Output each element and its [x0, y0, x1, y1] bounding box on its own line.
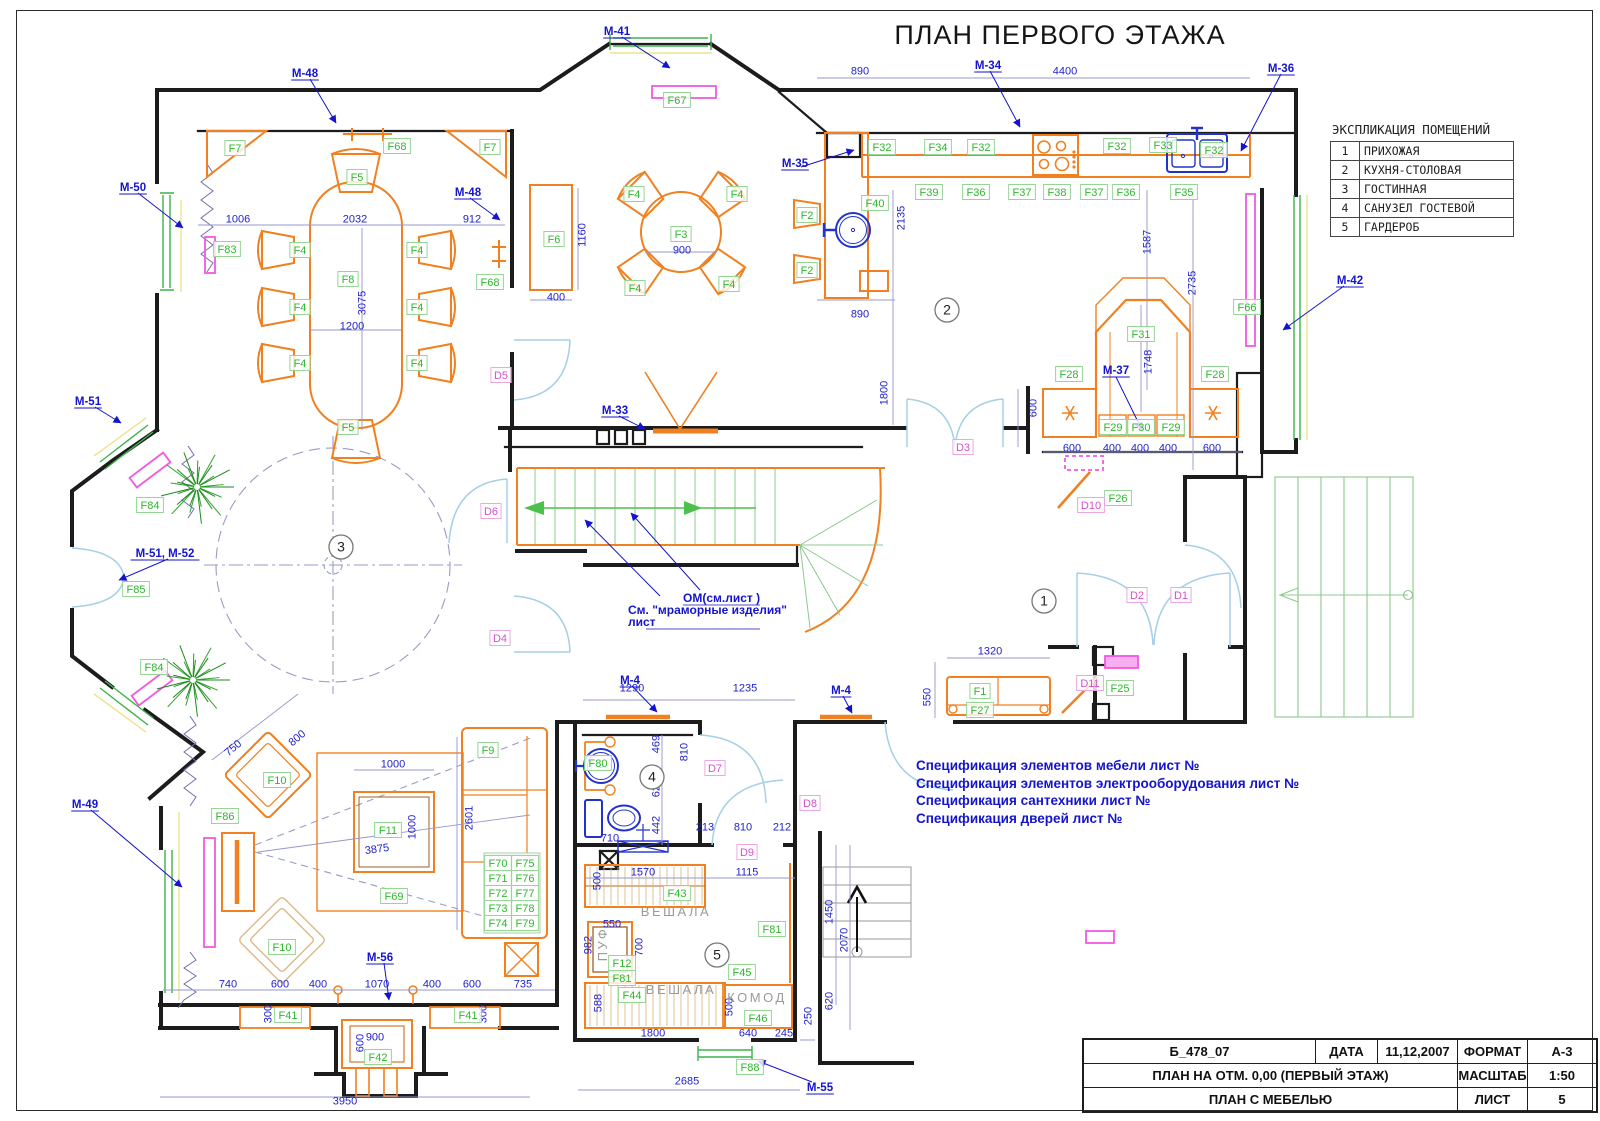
furniture-label: F2: [801, 265, 814, 277]
radiator-f86: [204, 838, 215, 947]
dimension-text: 400: [1159, 443, 1177, 455]
legend-row: 2КУХНЯ-СТОЛОВАЯ: [1331, 161, 1514, 180]
furniture-label: F86: [216, 811, 235, 823]
format-value: А-3: [1528, 1040, 1596, 1063]
mount-label: М-42: [1337, 275, 1363, 287]
furniture-label: F33: [1154, 140, 1173, 152]
spec-note-line: Спецификация дверей лист №: [916, 810, 1299, 828]
furniture-label: F32: [1108, 141, 1127, 153]
furniture-label: F40: [866, 198, 885, 210]
plant-icon: [157, 645, 230, 716]
furniture-label: F68: [388, 141, 407, 153]
furniture-label: F25: [1111, 683, 1130, 695]
dimension-text: 620: [824, 992, 836, 1010]
legend-row: 4САНУЗЕЛ ГОСТЕВОЙ: [1331, 199, 1514, 218]
fireplace-f31: [1043, 278, 1238, 437]
dimension-text: 400: [547, 292, 565, 304]
dimension-text: 810: [679, 743, 691, 761]
furniture-label: F38: [1048, 187, 1067, 199]
door-label: D4: [493, 633, 507, 645]
furniture-label: F83: [218, 244, 237, 256]
dimension-text: 1160: [577, 223, 589, 247]
legend-row: 1ПРИХОЖАЯ: [1331, 142, 1514, 161]
furniture-label: F79: [516, 918, 535, 930]
legend-cell: 1: [1331, 142, 1360, 161]
furniture-label: F77: [516, 888, 535, 900]
furniture-label: F4: [723, 279, 736, 291]
legend-cell: 2: [1331, 161, 1360, 180]
furniture-label: F6: [548, 234, 561, 246]
dimension-text: 1000: [407, 815, 419, 839]
room-number: 2: [943, 302, 951, 318]
dimension-text: 735: [514, 979, 532, 991]
island-sink-f40-icon: [824, 213, 870, 247]
room-number-bubbles: 12345: [329, 298, 1056, 967]
mount-label: М-50: [120, 182, 146, 194]
furniture-label: F34: [929, 142, 948, 154]
scale-label: МАСШТАБ: [1458, 1064, 1528, 1087]
furniture-label: F30: [1132, 422, 1151, 434]
legend-cell: 3: [1331, 180, 1360, 199]
dimension-text: 900: [366, 1032, 384, 1044]
dimension-text: 1235: [733, 683, 757, 695]
door-label: D2: [1130, 590, 1144, 602]
legend-row: 3ГОСТИННАЯ: [1331, 180, 1514, 199]
radiator-small: [1086, 931, 1114, 943]
mount-label: М-4: [831, 685, 851, 697]
stair-annotation: лист: [628, 615, 656, 629]
legend-cell: САНУЗЕЛ ГОСТЕВОЙ: [1360, 199, 1514, 218]
furniture-label: F4: [294, 358, 307, 370]
room-number: 1: [1040, 593, 1048, 609]
radiator-f66: [1246, 194, 1255, 346]
furniture-label: F29: [1162, 422, 1181, 434]
stair-direction-arrow: [524, 501, 544, 515]
furniture-label: F74: [489, 918, 508, 930]
furniture-label: F41: [459, 1010, 478, 1022]
plants: [157, 452, 234, 716]
dimension-text: 600: [1203, 443, 1221, 455]
dimension-text: 1800: [879, 381, 891, 405]
mount-label: М-34: [975, 60, 1002, 72]
dimension-text: 600: [1028, 399, 1040, 417]
dimension-text: 1587: [1142, 230, 1154, 254]
furniture-label: F43: [668, 888, 687, 900]
furniture-label: F31: [1132, 329, 1151, 341]
title-block: Б_478_07 ДАТА 11,12,2007 ФОРМАТ А-3 ПЛАН…: [1082, 1038, 1598, 1113]
room-number: 5: [713, 947, 721, 963]
dimension-text: 250: [803, 1007, 815, 1025]
radiator-f84: [130, 453, 171, 488]
dimension-text: 550: [922, 688, 934, 706]
room-number: 4: [648, 769, 656, 785]
door-label: D11: [1080, 678, 1099, 690]
furniture-label: F9: [482, 745, 495, 757]
dimension-text: 3950: [333, 1096, 357, 1108]
asterisk-icon: [1062, 406, 1221, 420]
legend-cell: ГОСТИННАЯ: [1360, 180, 1514, 199]
wall-lamp-f68: [492, 240, 506, 268]
dimension-text: 982: [583, 936, 595, 954]
cabinet-f26-dashed: [1065, 456, 1103, 470]
mount-label: М-49: [72, 799, 98, 811]
dimension-text: 4400: [1053, 66, 1077, 78]
door-label: D1: [1174, 590, 1188, 602]
door-label: D6: [484, 506, 498, 518]
door-label: D5: [494, 370, 508, 382]
stair-annotations: ОМ(см.лист )См. "мраморные изделия"лист: [628, 591, 787, 629]
furniture-label: F12: [613, 958, 632, 970]
furniture-label: F32: [873, 142, 892, 154]
date-value: 11,12,2007: [1378, 1040, 1458, 1063]
bench-f1-f27: [947, 677, 1050, 715]
furniture-label: F10: [268, 775, 287, 787]
mount-label: М-37: [1103, 365, 1129, 377]
walls-exterior: [72, 44, 1296, 1096]
mount-label: М-33: [602, 405, 628, 417]
dimension-text: 1006: [226, 214, 250, 226]
furniture-label: F4: [294, 302, 307, 314]
scale-value: 1:50: [1528, 1064, 1596, 1087]
spec-note-line: Спецификация элементов электрооборудован…: [916, 775, 1299, 793]
mount-label: М-51: [75, 396, 102, 408]
spec-note-line: Спецификация элементов мебели лист №: [916, 757, 1299, 775]
furniture-label: F81: [763, 924, 782, 936]
furniture-label: F28: [1206, 369, 1225, 381]
furniture-label: F37: [1013, 187, 1032, 199]
dimension-text: 810: [734, 822, 752, 834]
dimension-text: 3875: [364, 842, 390, 857]
format-label: ФОРМАТ: [1458, 1040, 1528, 1063]
legend-cell: 5: [1331, 218, 1360, 237]
furniture-label: F46: [749, 1013, 768, 1025]
door-label: D9: [740, 847, 754, 859]
room-text: ВЕШАЛА: [641, 904, 711, 919]
mount-label: М-51, М-52: [136, 548, 195, 560]
dimension-text: 600: [1063, 443, 1081, 455]
dimension-text: 400: [1103, 443, 1121, 455]
legend-row: 5ГАРДЕРОБ: [1331, 218, 1514, 237]
furniture-label: F7: [484, 142, 497, 154]
furniture-label: F76: [516, 873, 535, 885]
furniture-label: F10: [273, 942, 292, 954]
door-label: D8: [803, 798, 817, 810]
furniture-label: F5: [342, 422, 355, 434]
furniture-label: F73: [489, 903, 508, 915]
mount-label: М-55: [807, 1082, 834, 1094]
walls-interior: [198, 44, 1296, 869]
toilet-icon: [585, 800, 640, 837]
furniture-label: F7: [229, 143, 242, 155]
furniture-label: F2: [801, 210, 814, 222]
mount-label: М-35: [782, 158, 809, 170]
dimension-text: 588: [593, 994, 605, 1012]
dimension-text: 213: [696, 822, 714, 834]
mount-label: М-4: [620, 675, 640, 687]
dimension-text: 750: [222, 738, 244, 759]
side-table-xbox: [505, 943, 538, 976]
dimension-text: 400: [1131, 443, 1149, 455]
floor-plan-sheet: { "title": "ПЛАН ПЕРВОГО ЭТАЖА", "legend…: [0, 0, 1600, 1121]
mount-label: М-56: [367, 952, 393, 964]
dimension-text: 400: [309, 979, 327, 991]
furniture-label: F66: [1238, 302, 1257, 314]
dimension-text: 245: [775, 1028, 793, 1040]
furniture-label: F67: [668, 95, 687, 107]
dimension-text: 2735: [1187, 271, 1199, 295]
spec-note-line: Спецификация сантехники лист №: [916, 792, 1299, 810]
furniture-label: F36: [1117, 187, 1136, 199]
furniture-label: F69: [385, 891, 404, 903]
furniture-label: F84: [145, 662, 164, 674]
furniture-label: F29: [1104, 422, 1123, 434]
furniture-label: F80: [589, 758, 608, 770]
dimension-text: 400: [423, 979, 441, 991]
furniture-label: F81: [613, 973, 632, 985]
furniture-label: F32: [1205, 145, 1224, 157]
furniture-label: F42: [369, 1052, 388, 1064]
dimension-text: 600: [271, 979, 289, 991]
legend-cell: ПРИХОЖАЯ: [1360, 142, 1514, 161]
room-number: 3: [337, 539, 345, 555]
legend-table: 1ПРИХОЖАЯ2КУХНЯ-СТОЛОВАЯ3ГОСТИННАЯ4САНУЗ…: [1330, 141, 1514, 237]
furniture-label: F28: [1060, 369, 1079, 381]
dimension-text: 469: [651, 735, 663, 753]
dimension-text: 890: [851, 66, 869, 78]
door-label: D3: [956, 442, 970, 454]
dimension-text: 212: [773, 822, 791, 834]
furniture-label: F4: [731, 189, 744, 201]
dimension-text: 442: [651, 816, 663, 834]
radiator-f84: [132, 671, 173, 706]
furniture-label: F32: [972, 142, 991, 154]
furniture-label: F11: [379, 825, 397, 837]
room-text: КОМОД: [727, 990, 787, 1005]
furniture-label: F4: [628, 189, 641, 201]
furniture-label: F1: [974, 686, 987, 698]
furniture-label: F88: [741, 1062, 760, 1074]
sheet-value: 5: [1528, 1088, 1596, 1111]
furniture-label: F3: [675, 229, 688, 241]
specification-notes: Спецификация элементов мебели лист №Спец…: [916, 757, 1299, 827]
furniture-label: F4: [411, 358, 424, 370]
furniture-label: F70: [489, 858, 508, 870]
mount-label: М-48: [292, 68, 319, 80]
dimension-text: 1570: [631, 867, 655, 879]
dimension-text: 2070: [839, 928, 851, 952]
furniture-label: F4: [411, 302, 424, 314]
dimension-text: 740: [219, 979, 237, 991]
dimension-text: 1800: [641, 1028, 665, 1040]
dimension-lines: [160, 78, 1250, 1097]
furniture-label: F27: [971, 705, 990, 717]
furniture-label: F4: [411, 245, 424, 257]
furniture-label: F26: [1109, 493, 1128, 505]
furniture-label: F36: [967, 187, 986, 199]
plant-icon: [161, 452, 234, 523]
dimension-text: 3075: [357, 291, 369, 315]
legend-title: ЭКСПЛИКАЦИЯ ПОМЕЩЕНИЙ: [1332, 122, 1514, 137]
dimension-text: 1748: [1143, 350, 1155, 374]
furniture-label: F5: [351, 172, 364, 184]
date-label: ДАТА: [1316, 1040, 1378, 1063]
plan-title: ПЛАН НА ОТМ. 0,00 (ПЕРВЫЙ ЭТАЖ): [1084, 1064, 1458, 1087]
room-legend: ЭКСПЛИКАЦИЯ ПОМЕЩЕНИЙ 1ПРИХОЖАЯ2КУХНЯ-СТ…: [1330, 122, 1514, 237]
dimension-text: 500: [592, 872, 604, 890]
furniture-label: F78: [516, 903, 535, 915]
dimension-text: 900: [673, 245, 691, 257]
sheet-title: ПЛАН С МЕБЕЛЬЮ: [1084, 1088, 1458, 1111]
dimension-text: 1200: [340, 321, 364, 333]
dimension-text: 710: [601, 833, 619, 845]
legend-cell: ГАРДЕРОБ: [1360, 218, 1514, 237]
dimension-text: 600: [463, 979, 481, 991]
dimension-text: 2601: [464, 806, 476, 830]
dimension-text: 640: [739, 1028, 757, 1040]
door-label: D10: [1081, 500, 1101, 512]
dimension-text: 1000: [381, 759, 405, 771]
furniture-label: F85: [127, 584, 146, 596]
furniture-label: F35: [1175, 187, 1194, 199]
dimension-text: 2032: [343, 214, 367, 226]
dimension-text: 1320: [978, 646, 1002, 658]
dimension-text: 2135: [896, 206, 908, 230]
furniture-label: F45: [733, 967, 752, 979]
leader-arrows: [91, 37, 1344, 1082]
dimension-text: 890: [851, 309, 869, 321]
mount-label: М-41: [604, 26, 631, 38]
furniture-label: F68: [481, 277, 500, 289]
dimension-text: 2685: [675, 1076, 699, 1088]
tv-cabinet: [222, 833, 254, 911]
furniture-label: F39: [920, 187, 939, 199]
furniture-label: F75: [516, 858, 535, 870]
furniture-label: F41: [279, 1010, 298, 1022]
legend-cell: 4: [1331, 199, 1360, 218]
furniture-label: F71: [489, 873, 508, 885]
dimension-text: 300: [263, 1005, 275, 1023]
sheet-label: ЛИСТ: [1458, 1088, 1528, 1111]
room-text: ПУФ: [595, 927, 610, 962]
furniture-label: F8: [342, 274, 355, 286]
furniture-label: F72: [489, 888, 508, 900]
furniture-label: F4: [294, 245, 307, 257]
door-label: D7: [708, 763, 722, 775]
furniture-label: F37: [1085, 187, 1104, 199]
stair-treads: [535, 468, 775, 545]
mount-labels: М-41М-48М-48М-50М-34М-35М-36М-42М-37М-33…: [71, 26, 1364, 1094]
doc-code: Б_478_07: [1084, 1040, 1316, 1063]
curtain-zigzags: [178, 164, 213, 1008]
dimension-text: 1115: [736, 867, 759, 879]
mount-label: М-36: [1268, 63, 1294, 75]
legend-cell: КУХНЯ-СТОЛОВАЯ: [1360, 161, 1514, 180]
furniture-label: F84: [141, 500, 160, 512]
furniture-label: F4: [629, 283, 642, 295]
dimension-text: 700: [634, 938, 646, 956]
room-text: ВЕШАЛА: [646, 982, 716, 997]
dimension-text: 912: [463, 214, 481, 226]
dimension-text: 800: [286, 728, 308, 749]
radiator-f25: [1105, 656, 1138, 668]
dimension-text: 1450: [824, 900, 836, 924]
dimension-text: 1070: [365, 979, 389, 991]
entrance-stairs: [1275, 477, 1413, 717]
mount-label: М-48: [455, 187, 482, 199]
furniture-label: F44: [623, 990, 642, 1002]
